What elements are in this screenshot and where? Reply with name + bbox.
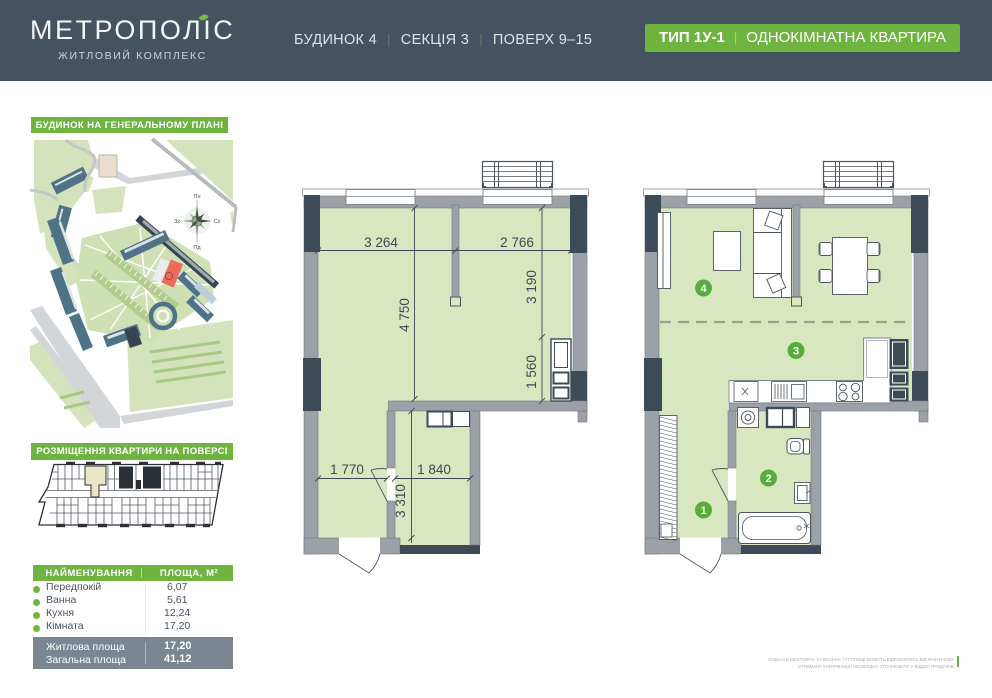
svg-text:3 190: 3 190 <box>524 270 539 304</box>
svg-text:1 840: 1 840 <box>417 462 451 477</box>
svg-text:Пд: Пд <box>193 245 201 251</box>
svg-text:4 750: 4 750 <box>397 298 412 332</box>
svg-text:3: 3 <box>793 346 799 358</box>
svg-text:Зх: Зх <box>174 219 180 225</box>
svg-text:3 264: 3 264 <box>364 235 398 250</box>
svg-text:4: 4 <box>700 283 707 295</box>
svg-text:2: 2 <box>765 473 771 485</box>
svg-text:Сх: Сх <box>214 219 221 225</box>
svg-text:1 560: 1 560 <box>524 355 539 389</box>
svg-text:Пн: Пн <box>194 194 201 200</box>
svg-text:1: 1 <box>700 505 706 517</box>
svg-text:1 770: 1 770 <box>330 462 364 477</box>
svg-text:2 766: 2 766 <box>500 235 534 250</box>
svg-text:3 310: 3 310 <box>393 484 408 518</box>
